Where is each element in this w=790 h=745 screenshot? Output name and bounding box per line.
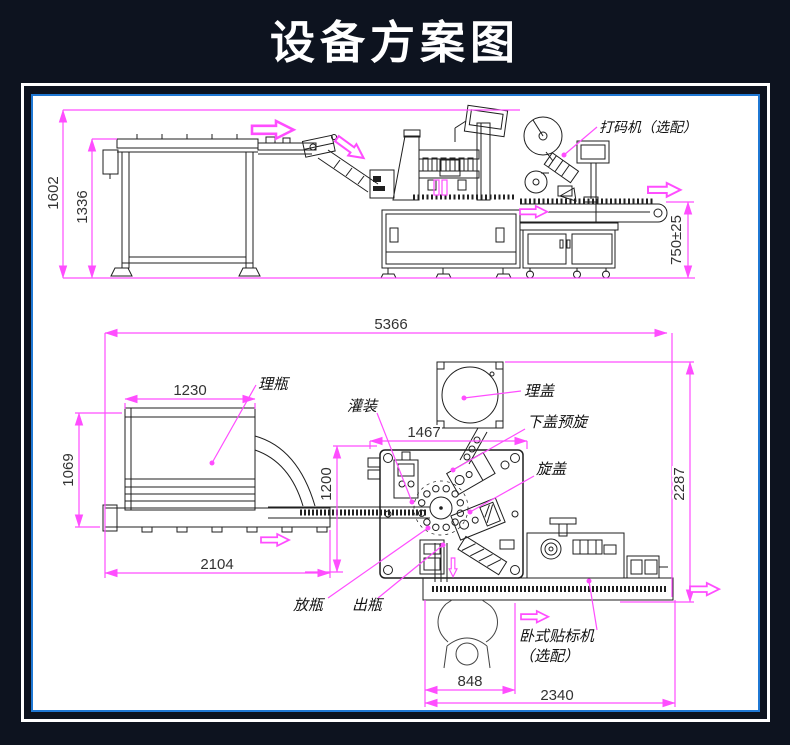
cap-sorter-label: 理盖 [524,382,555,400]
dim-monoblock-width: 1467 [407,424,440,441]
dimension-unscrambler-depth: 1069 [60,413,122,527]
coder-label: 打码机（选配） [599,120,697,136]
bottle-in-label: 放瓶 [293,596,326,614]
unscrambler-callout: 理瓶 [210,375,292,466]
dim-conveyor-height: 750±25 [668,215,685,265]
filling-label: 灌装 [347,397,379,415]
top-view-drawing: 1602 1336 750±25 打码机（选配） [45,105,697,278]
capping-label: 旋盖 [536,460,567,478]
bottle-unscrambler-elevation [103,134,260,276]
dim-outfeed-depth: 2287 [671,467,688,500]
cap-prescrew-callout: 下盖预旋 [451,413,591,473]
bottle-unscrambler-plan [125,408,315,510]
flow-arrow-icon [690,583,719,595]
flow-arrow-icon [520,206,547,218]
flow-arrow-icon [521,611,548,623]
top-view-annotations: 1602 1336 750±25 打码机（选配） [45,110,697,278]
dimension-unscrambler-width: 1230 [125,382,255,409]
dim-infeed-length: 2104 [200,556,233,573]
dim-table-height: 1336 [74,190,91,223]
flow-arrow-icon [449,558,457,577]
cap-sorter-plan [437,362,503,464]
dim-outfeed-length: 2340 [540,687,573,704]
dimension-table-height: 1336 [74,139,92,278]
unscrambler-label: 理瓶 [258,375,291,393]
infeed-conveyor-plan [103,505,430,532]
operator-figure [438,600,498,668]
equipment-plan-page: 设备方案图 [0,0,790,745]
dimension-total-length: 5366 [105,316,667,333]
dimension-infeed-length: 2104 [105,530,330,578]
coder-callout: 打码机（选配） [562,120,698,158]
bottle-out-label: 出瓶 [352,596,385,614]
dim-total-length: 5366 [374,316,407,333]
filler-capper-elevation [381,105,520,278]
monoblock-plan [368,450,523,582]
dimension-conveyor-height: 750±25 [668,202,688,278]
flow-arrow-icon [333,133,368,164]
bottom-view-drawing: 5366 1230 1069 2104 [60,316,719,707]
dim-unscrambler-width: 1230 [173,382,206,399]
dim-monoblock-depth: 1200 [318,467,335,500]
flow-arrow-icon [252,121,294,139]
infeed-elevator [258,135,394,199]
cap-prescrew-label: 下盖预旋 [527,413,590,431]
cad-drawing: 1602 1336 750±25 打码机（选配） [0,0,790,745]
flow-arrow-icon [648,183,681,197]
dim-workstation-width: 848 [457,673,482,690]
outfeed-line-plan [423,518,673,600]
dim-unscrambler-depth: 1069 [60,453,77,486]
dim-total-height: 1602 [45,176,62,209]
labeler-label-line1: 卧式贴标机 [519,627,595,645]
worktable-elevation [520,223,618,278]
cap-sorter-callout: 理盖 [462,382,556,401]
flow-arrow-icon [261,534,289,546]
dimension-total-height: 1602 [45,110,63,278]
dimension-monoblock-depth: 1200 [305,446,377,572]
labeler-label-line2: （选配） [519,647,579,665]
